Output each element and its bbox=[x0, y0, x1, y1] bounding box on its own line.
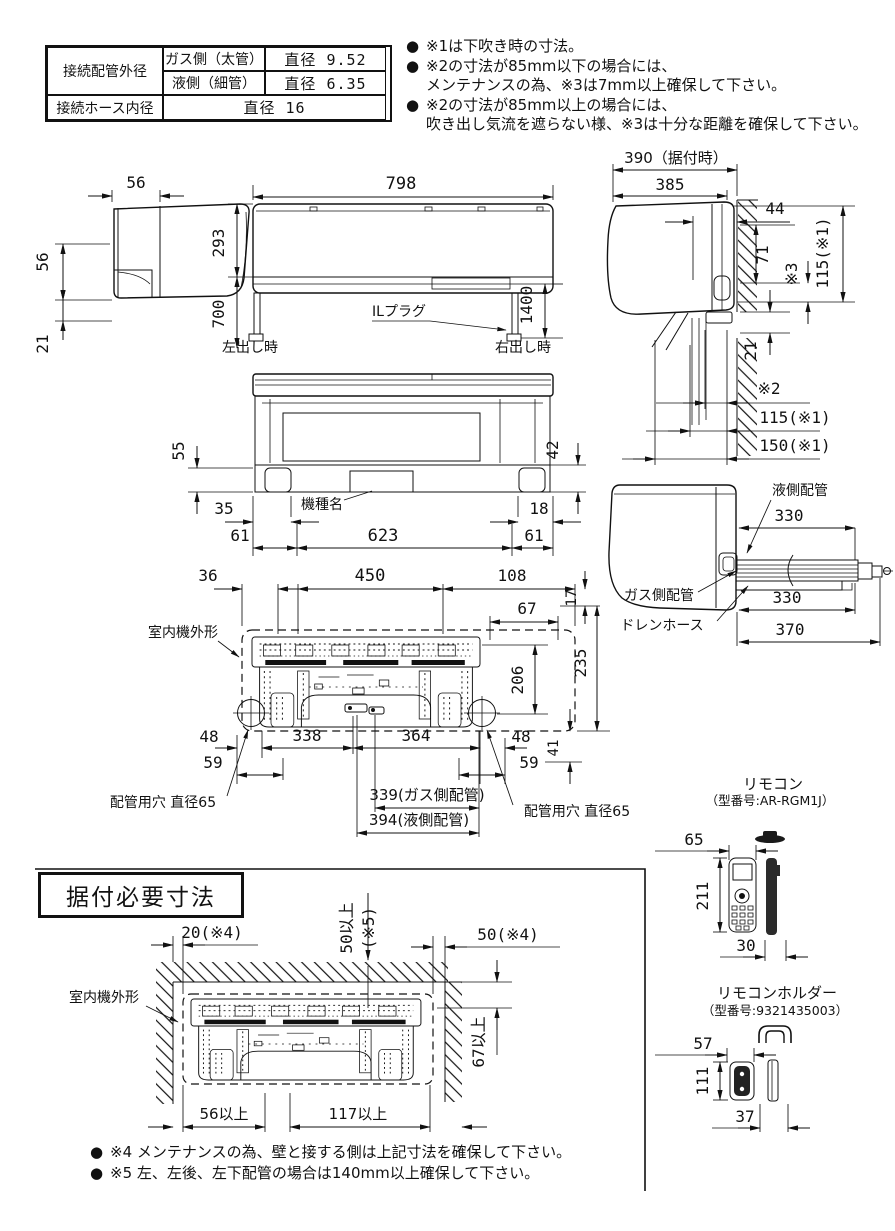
dim-req-50: 50(※4) bbox=[477, 925, 539, 944]
dim-left-pipe-length: 700 bbox=[209, 300, 228, 329]
dim-71: 71 bbox=[753, 245, 772, 264]
spec-liquid-label: 液側（細管） bbox=[163, 71, 265, 95]
technical-drawing: 56 56 21 798 293 700 左出し時 ILプラグ 右出し時 140… bbox=[0, 0, 895, 1231]
dim-330-gas: 330 bbox=[773, 588, 802, 607]
label-il-plug: ILプラグ bbox=[372, 304, 426, 320]
label-pipe-hole-right: 配管用穴 直径65 bbox=[524, 803, 630, 820]
pipe-side-view: 液側配管 330 ガス側配管 ドレンホース 330 370 bbox=[609, 483, 893, 646]
rear-view: 室内機外形 36 450 108 67 17 235 206 48 338 36… bbox=[110, 566, 630, 837]
dim-side-depth: 56 bbox=[126, 173, 145, 192]
dim-235: 235 bbox=[571, 649, 590, 678]
dim-55: 55 bbox=[169, 441, 188, 460]
dim-59-left: 59 bbox=[203, 753, 222, 772]
dim-install-depth-total: 390（据付時） bbox=[624, 149, 728, 167]
dim-59-right: 59 bbox=[519, 753, 538, 772]
remote-model: （型番号:AR-RGM1J） bbox=[706, 793, 835, 808]
dim-370: 370 bbox=[776, 620, 805, 639]
dim-623: 623 bbox=[368, 526, 399, 546]
note-line: ●※1は下吹き時の寸法。 bbox=[406, 37, 868, 57]
dim-339-gas: 339(ガス側配管) bbox=[369, 786, 484, 804]
notes-top: ●※1は下吹き時の寸法。 ●※2の寸法が85mm以下の場合には、 メンテナンスの… bbox=[406, 37, 868, 135]
installation-dimensions-sheet: 56 56 21 798 293 700 左出し時 ILプラグ 右出し時 140… bbox=[0, 0, 895, 1231]
dim-front-height: 293 bbox=[209, 229, 228, 258]
spec-pipe-outer-label: 接続配管外径 bbox=[47, 47, 163, 95]
dim-17: 17 bbox=[564, 590, 580, 607]
bottom-view: 機種名 55 42 35 18 61 623 61 bbox=[169, 374, 586, 556]
dim-41: 41 bbox=[546, 740, 562, 757]
remote-control-view: リモコン （型番号:AR-RGM1J） 65 211 30 bbox=[655, 775, 834, 961]
label-left-outlet: 左出し時 bbox=[222, 340, 278, 356]
dim-206: 206 bbox=[508, 666, 527, 695]
label-liquid-pipe: 液側配管 bbox=[772, 483, 828, 499]
note-line: ●※2の寸法が85mm以下の場合には、 bbox=[406, 57, 868, 77]
dim-115-top: 115(※1) bbox=[813, 217, 832, 288]
dim-18: 18 bbox=[529, 499, 548, 518]
dim-req-50min-1: 50以上 bbox=[337, 902, 356, 953]
dim-remote-depth: 30 bbox=[736, 936, 755, 955]
dim-36: 36 bbox=[198, 566, 217, 585]
label-gas-pipe: ガス側配管 bbox=[624, 588, 694, 604]
dim-req-56min: 56以上 bbox=[199, 1105, 248, 1123]
dim-364: 364 bbox=[402, 726, 431, 745]
spec-table: 接続配管外径 ガス側（太管） 直径 9.52 液側（細管） 直径 6.35 接続… bbox=[45, 45, 392, 122]
note-line: ●※2の寸法が85mm以上の場合には、 bbox=[406, 96, 868, 116]
dim-front-width: 798 bbox=[386, 174, 417, 194]
remote-title: リモコン bbox=[743, 775, 803, 793]
dim-48-left: 48 bbox=[199, 727, 218, 746]
dim-remote-width: 65 bbox=[684, 830, 703, 849]
spec-gas-value: 直径 9.52 bbox=[265, 47, 386, 71]
note-line: 吹き出し気流を遮らない様、※3は十分な距離を確保して下さい。 bbox=[406, 115, 868, 135]
dim-21-wall: 21 bbox=[741, 341, 760, 360]
dim-61-right: 61 bbox=[524, 526, 543, 545]
holder-title: リモコンホルダー bbox=[717, 984, 837, 1002]
holder-model: （型番号:9321435003） bbox=[702, 1003, 848, 1018]
dim-right-pipe-length: 1400 bbox=[517, 286, 536, 325]
dim-remote-height: 211 bbox=[693, 882, 712, 911]
dim-star2: ※2 bbox=[757, 379, 780, 398]
dim-42: 42 bbox=[543, 440, 562, 459]
dim-150: 150(※1) bbox=[759, 436, 830, 455]
remote-holder-view: リモコンホルダー （型番号:9321435003） 57 111 37 bbox=[655, 984, 848, 1132]
dim-req-67min: 67以上 bbox=[469, 1016, 488, 1067]
label-drain-hose: ドレンホース bbox=[620, 618, 703, 634]
label-indoor-unit-outline: 室内機外形 bbox=[148, 624, 218, 641]
spec-liquid-value: 直径 6.35 bbox=[265, 71, 386, 95]
dim-338: 338 bbox=[293, 726, 322, 745]
spec-hose-value: 直径 16 bbox=[163, 95, 386, 120]
label-pipe-hole-left: 配管用穴 直径65 bbox=[110, 794, 216, 811]
dim-67: 67 bbox=[517, 599, 536, 618]
dim-side-height: 56 bbox=[33, 252, 52, 271]
dim-48-right: 48 bbox=[511, 727, 530, 746]
spec-hose-label: 接続ホース内径 bbox=[47, 95, 163, 120]
dim-holder-width: 57 bbox=[693, 1034, 712, 1053]
dim-req-117min: 117以上 bbox=[329, 1105, 388, 1123]
dim-108: 108 bbox=[498, 566, 527, 585]
spec-gas-label: ガス側（太管） bbox=[163, 47, 265, 71]
dim-star3: ※3 bbox=[782, 262, 801, 285]
dim-330-liquid: 330 bbox=[775, 506, 804, 525]
dim-450: 450 bbox=[355, 566, 386, 586]
install-side-view: 390（据付時） 385 44 71 ※3 115(※1) 21 ※2 115(… bbox=[607, 149, 855, 465]
dim-side-bottom: 21 bbox=[33, 334, 52, 353]
dim-install-depth-body: 385 bbox=[656, 175, 685, 194]
note-line: ●※4 メンテナンスの為、壁と接する側は上記寸法を確保して下さい。 bbox=[90, 1142, 571, 1163]
label-model-name: 機種名 bbox=[301, 497, 343, 513]
note-line: メンテナンスの為、※3は7mm以上確保して下さい。 bbox=[406, 76, 868, 96]
dim-115-bottom: 115(※1) bbox=[759, 408, 830, 427]
dim-holder-depth: 37 bbox=[735, 1107, 754, 1126]
dim-44: 44 bbox=[765, 199, 784, 218]
dim-holder-height: 111 bbox=[693, 1067, 712, 1096]
note-line: ●※5 左、左後、左下配管の場合は140mm以上確保して下さい。 bbox=[90, 1163, 571, 1184]
dim-61-left: 61 bbox=[230, 526, 249, 545]
notes-bottom: ●※4 メンテナンスの為、壁と接する側は上記寸法を確保して下さい。 ●※5 左、… bbox=[90, 1142, 571, 1184]
front-view: 798 293 700 左出し時 ILプラグ 右出し時 1400 bbox=[209, 174, 563, 356]
dim-req-20: 20(※4) bbox=[181, 923, 243, 942]
dim-394-liquid: 394(液側配管) bbox=[369, 811, 469, 829]
label-req-outline: 室内機外形 bbox=[69, 989, 139, 1006]
dim-35: 35 bbox=[214, 499, 233, 518]
install-required-title: 据付必要寸法 bbox=[38, 872, 244, 918]
label-right-outlet: 右出し時 bbox=[495, 340, 551, 356]
